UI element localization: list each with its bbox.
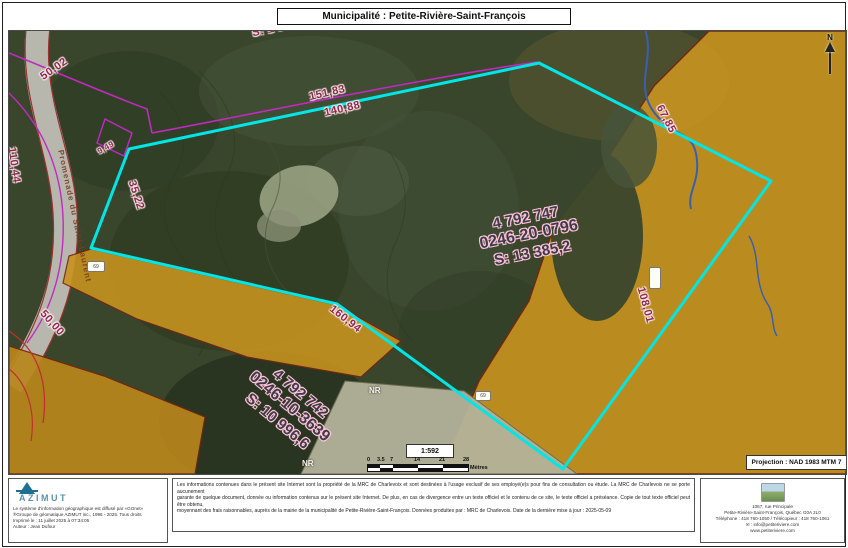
disclaimer-line: moyennant des frais raisonnables, auprès… xyxy=(177,508,690,515)
scale-bar-graphic xyxy=(367,464,469,472)
scale-tick: 21 xyxy=(439,457,445,463)
map-badge xyxy=(649,267,661,289)
scale-tick: 0 xyxy=(367,457,370,463)
north-arrow-shaft xyxy=(829,52,831,74)
map-graphics xyxy=(9,31,846,474)
zone-code-label: NR xyxy=(302,459,314,468)
scale-ratio: 1:592 xyxy=(421,448,439,455)
disclaimer-line: Les informations contenues dans le prése… xyxy=(177,482,690,495)
map-badge: 69 xyxy=(475,391,491,401)
scale-tick: 28 xyxy=(463,457,469,463)
azimut-credit-box: AZIMUT Le système d'information géograph… xyxy=(8,478,168,543)
municipality-contact-box: 1067, rue Principale Petite-Rivière-Sain… xyxy=(700,478,845,543)
disclaimer-box: Les informations contenues dans le prése… xyxy=(172,478,695,532)
map-canvas[interactable]: 50,02 S: 1 0 151,83 140,88 110,44 9,49 3… xyxy=(8,30,847,475)
projection-box: Projection : NAD 1983 MTM 7 xyxy=(746,455,847,470)
contact-lines: 1067, rue Principale Petite-Rivière-Sain… xyxy=(705,504,840,534)
azimut-wordmark: AZIMUT xyxy=(19,493,68,503)
page-title: Municipalité : Petite-Rivière-Saint-Fran… xyxy=(322,11,525,22)
scale-tick: 7 xyxy=(390,457,393,463)
scale-bar: 0 3.5 7 14 21 28 Mètres xyxy=(367,457,485,472)
azimut-credit-lines: Le système d'information géographique es… xyxy=(13,506,163,530)
azimut-triangle-icon xyxy=(19,482,35,494)
contact-line: www.petiteriviere.com xyxy=(705,528,840,534)
scale-ticks: 0 3.5 7 14 21 28 xyxy=(367,457,485,464)
scale-tick: 14 xyxy=(414,457,420,463)
north-arrow-icon xyxy=(825,42,835,52)
north-label: N xyxy=(827,33,833,42)
azimut-logo: AZIMUT xyxy=(19,482,163,503)
zone-code-label: NR xyxy=(369,386,381,395)
credit-line: Auteur : Jean Dufour xyxy=(13,524,163,530)
north-arrow: N xyxy=(819,33,841,79)
projection-label: Projection : NAD 1983 MTM 7 xyxy=(752,459,842,466)
scale-unit: Mètres xyxy=(470,465,488,471)
map-title-box: Municipalité : Petite-Rivière-Saint-Fran… xyxy=(277,8,571,25)
scale-tick: 3.5 xyxy=(377,457,385,463)
municipality-logo xyxy=(761,483,785,502)
map-badge: 69 xyxy=(87,261,105,272)
scale-ratio-box: 1:592 xyxy=(406,444,454,458)
disclaimer-line: garante de quelque document, donnée ou i… xyxy=(177,495,690,508)
